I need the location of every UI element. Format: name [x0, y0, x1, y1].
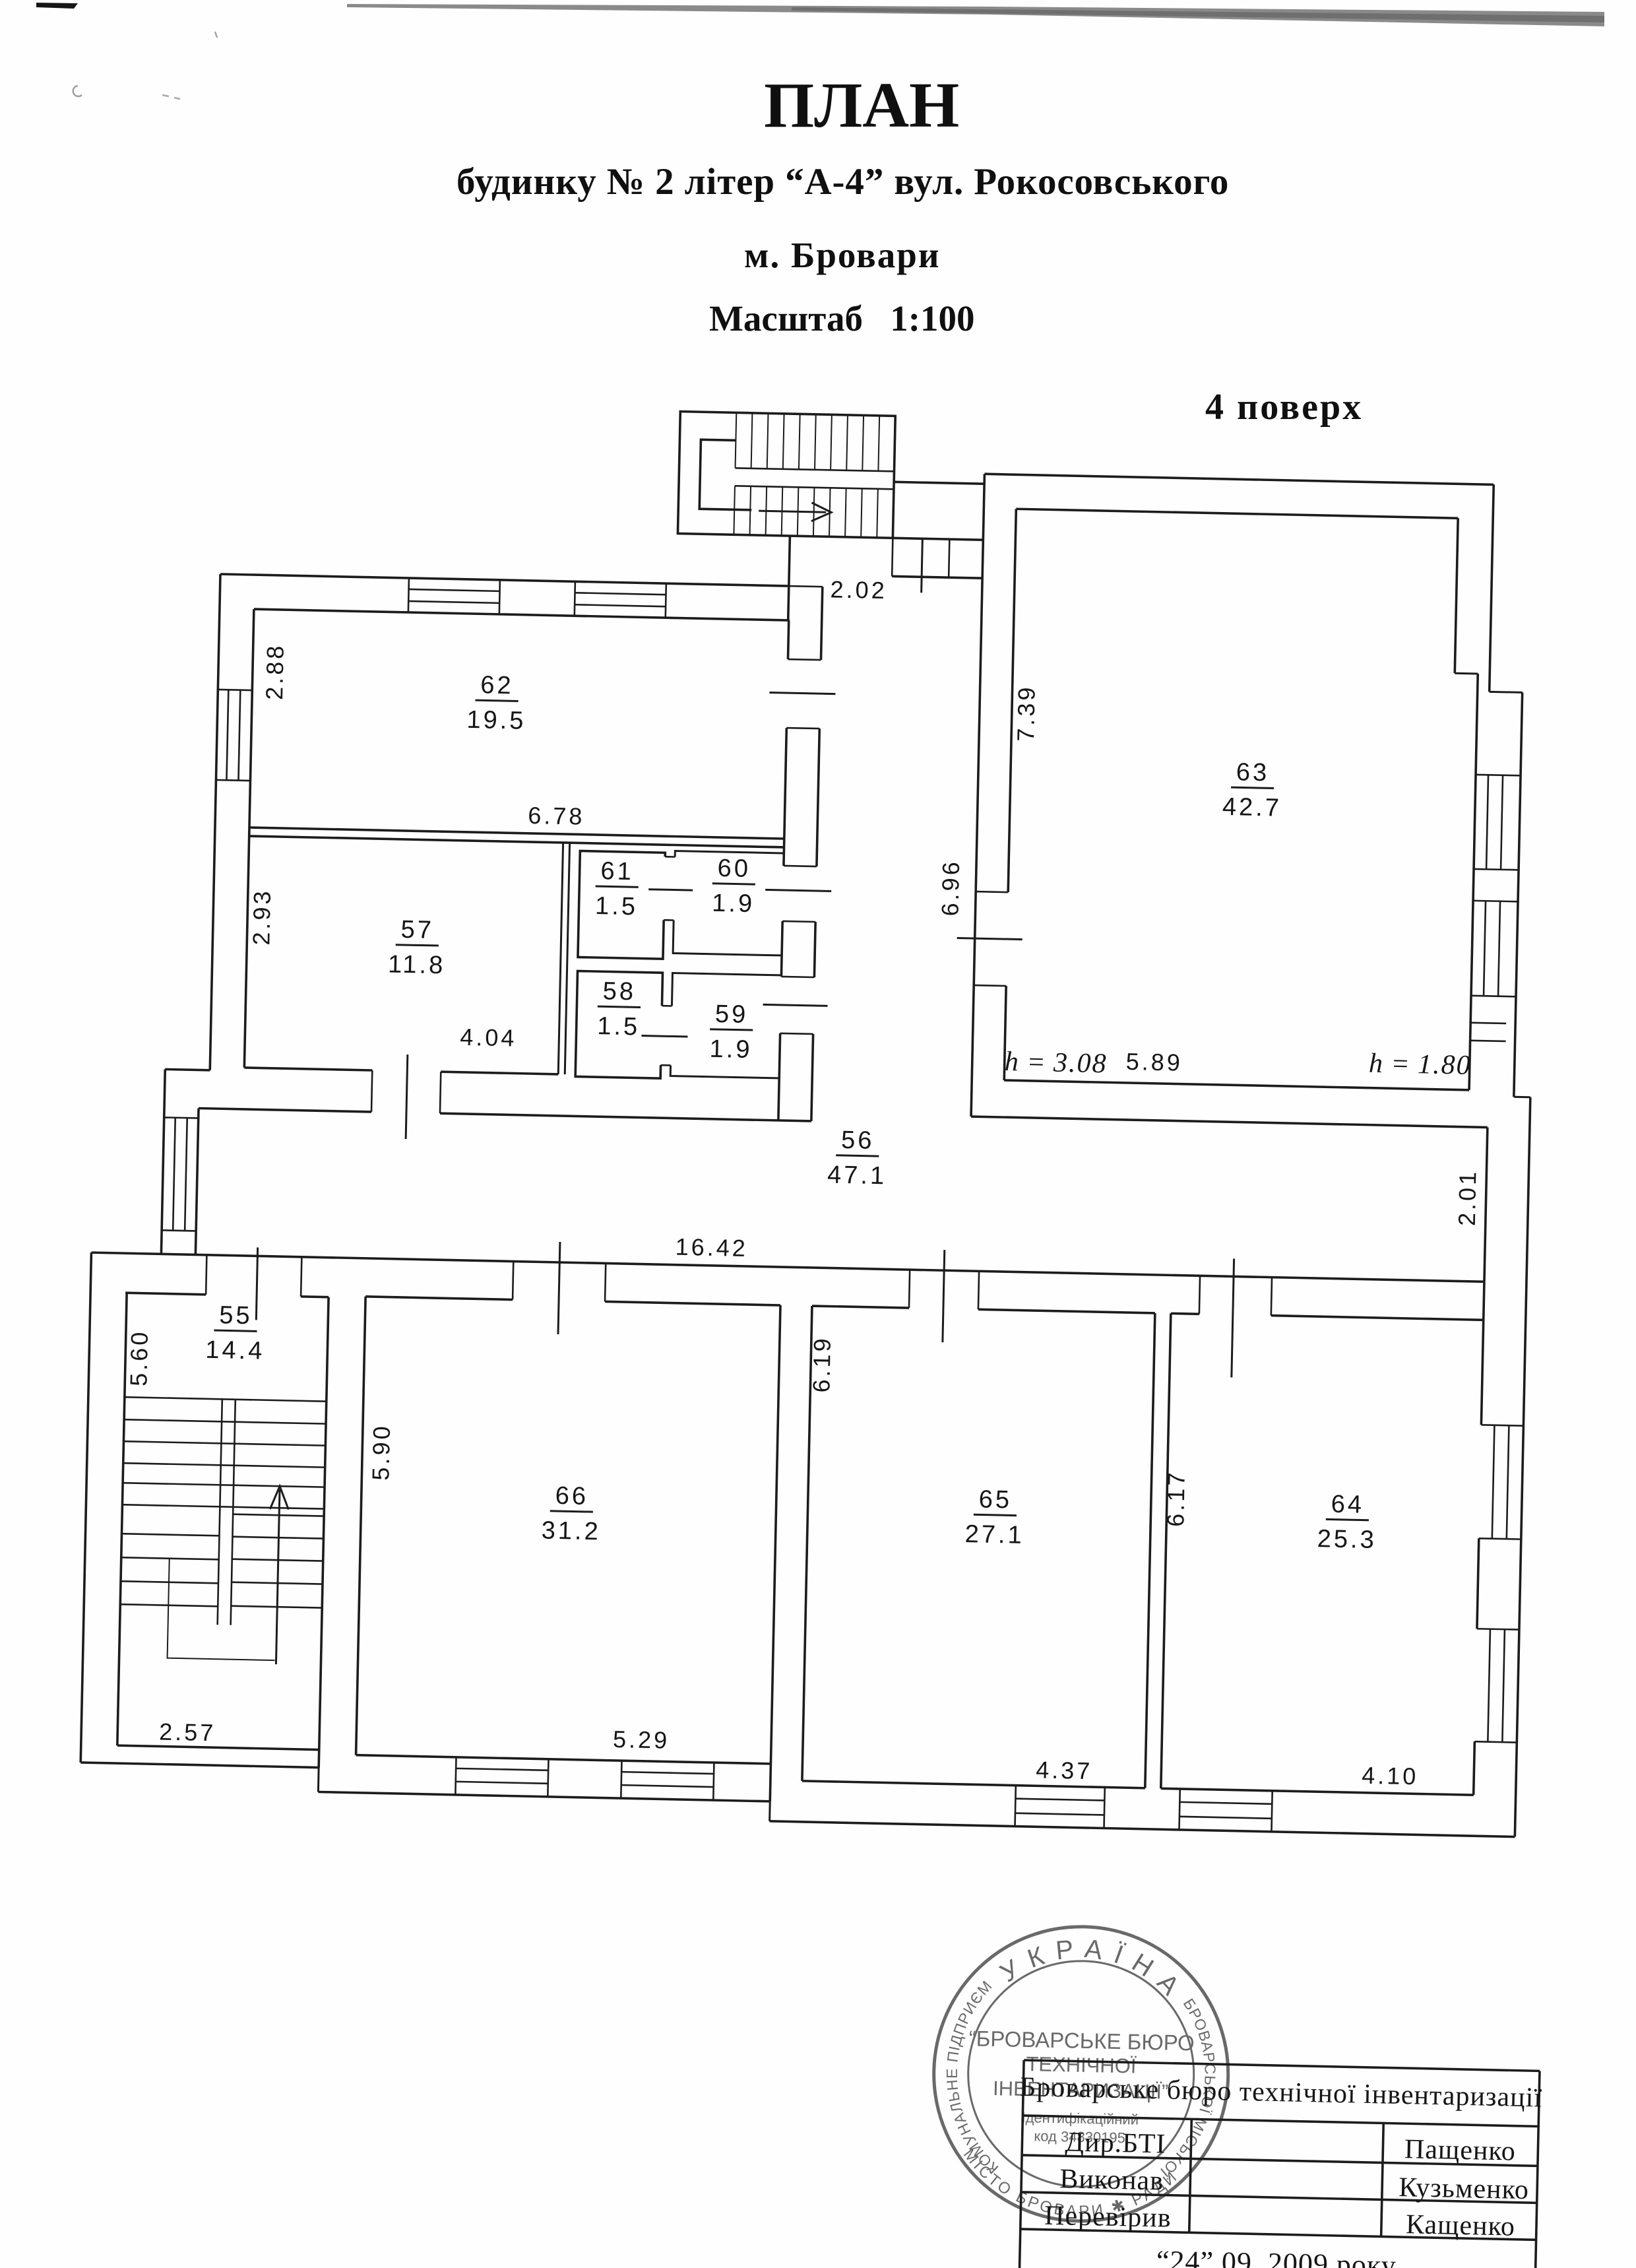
svg-text:Виконав: Виконав [1059, 2164, 1164, 2196]
svg-text:2.88: 2.88 [261, 643, 289, 700]
svg-text:7.39: 7.39 [1012, 684, 1040, 742]
svg-text:66: 66 [555, 1482, 588, 1510]
svg-text:1.9: 1.9 [712, 890, 755, 918]
svg-text:КОМУНАЛЬНЕ ПІДПРИЄМСТВО: КОМУНАЛЬНЕ ПІДПРИЄМСТВО [0, 0, 1047, 2178]
svg-text:2.93: 2.93 [247, 888, 276, 946]
svg-text:2.01: 2.01 [1453, 1169, 1482, 1226]
svg-text:1.5: 1.5 [595, 892, 639, 921]
svg-text:14.4: 14.4 [205, 1336, 265, 1365]
svg-text:5.89: 5.89 [1125, 1048, 1183, 1076]
svg-text:16.42: 16.42 [675, 1233, 748, 1262]
svg-text:63: 63 [1236, 758, 1269, 787]
svg-text:4.10: 4.10 [1362, 1762, 1419, 1790]
svg-text:6.17: 6.17 [1162, 1470, 1190, 1527]
svg-text:60: 60 [717, 855, 751, 883]
svg-text:6.96: 6.96 [936, 859, 964, 917]
svg-text:4.37: 4.37 [1036, 1756, 1093, 1784]
svg-text:64: 64 [1331, 1491, 1364, 1519]
svg-text:1.5: 1.5 [597, 1012, 641, 1041]
svg-text:5.60: 5.60 [125, 1329, 153, 1386]
svg-text:1.9: 1.9 [709, 1035, 753, 1064]
svg-text:19.5: 19.5 [466, 706, 526, 735]
svg-text:42.7: 42.7 [1222, 793, 1282, 822]
svg-text:6.78: 6.78 [528, 802, 585, 830]
svg-text:56: 56 [841, 1126, 875, 1155]
svg-text:Броварське бюро технічної і: Броварське бюро технічної інвентаризації [1020, 2072, 1543, 2114]
svg-text:h = 3.08: h = 3.08 [1004, 1047, 1108, 1079]
svg-text:55: 55 [219, 1301, 253, 1330]
svg-text:Кузьменко: Кузьменко [1399, 2172, 1529, 2205]
svg-text:27.1: 27.1 [964, 1520, 1024, 1549]
svg-text:11.8: 11.8 [388, 950, 446, 979]
svg-text:57: 57 [400, 916, 434, 944]
svg-text:h = 1.80: h = 1.80 [1369, 1049, 1472, 1081]
svg-text:65: 65 [978, 1485, 1012, 1514]
svg-text:УКРАЇНА: УКРАЇНА [994, 1932, 1193, 2009]
svg-text:Пащенко: Пащенко [1404, 2134, 1517, 2167]
svg-text:“БРОВАРСЬКЕ БЮРО: “БРОВАРСЬКЕ БЮРО [968, 2026, 1195, 2055]
svg-text:2.02: 2.02 [830, 575, 887, 604]
svg-text:Перевірив: Перевірив [1044, 2201, 1172, 2234]
svg-text:Кащенко: Кащенко [1406, 2209, 1516, 2242]
svg-text:5.29: 5.29 [613, 1726, 670, 1754]
svg-text:25.3: 25.3 [1317, 1525, 1377, 1554]
svg-text:31.2: 31.2 [541, 1517, 601, 1546]
svg-text:61: 61 [600, 857, 634, 886]
svg-text:“24” 09. 2009 року: “24” 09. 2009 року [1156, 2244, 1397, 2268]
svg-text:4.04: 4.04 [460, 1023, 517, 1052]
svg-text:47.1: 47.1 [827, 1161, 887, 1190]
svg-text:62: 62 [480, 671, 514, 699]
svg-text:58: 58 [602, 977, 636, 1006]
svg-text:5.90: 5.90 [367, 1423, 395, 1481]
svg-text:Дир.БТІ: Дир.БТІ [1065, 2127, 1166, 2159]
svg-text:2.57: 2.57 [159, 1718, 216, 1746]
svg-text:6.19: 6.19 [807, 1336, 836, 1393]
svg-text:59: 59 [715, 1000, 749, 1029]
